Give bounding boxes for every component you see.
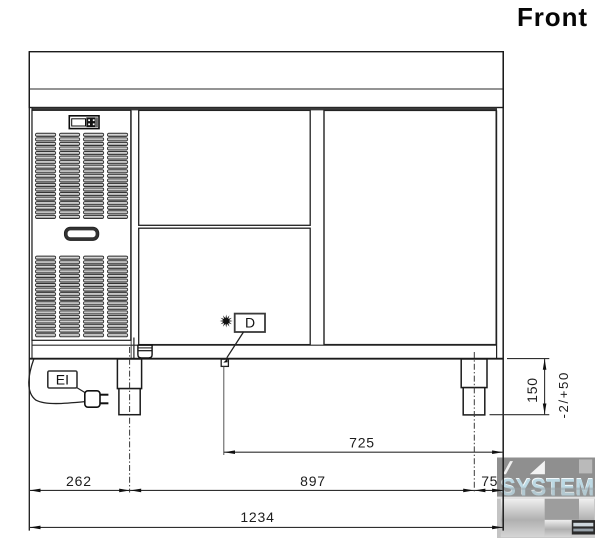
svg-text:75: 75 <box>481 473 498 489</box>
svg-text:D: D <box>245 314 255 330</box>
svg-text:-2/+50: -2/+50 <box>556 371 571 418</box>
svg-text:EI: EI <box>56 372 69 388</box>
svg-text:150: 150 <box>524 377 540 403</box>
svg-text:725: 725 <box>349 435 375 451</box>
svg-text:1234: 1234 <box>240 509 274 525</box>
svg-text:897: 897 <box>300 473 326 489</box>
svg-text:Front: Front <box>517 2 588 32</box>
svg-text:262: 262 <box>66 473 92 489</box>
